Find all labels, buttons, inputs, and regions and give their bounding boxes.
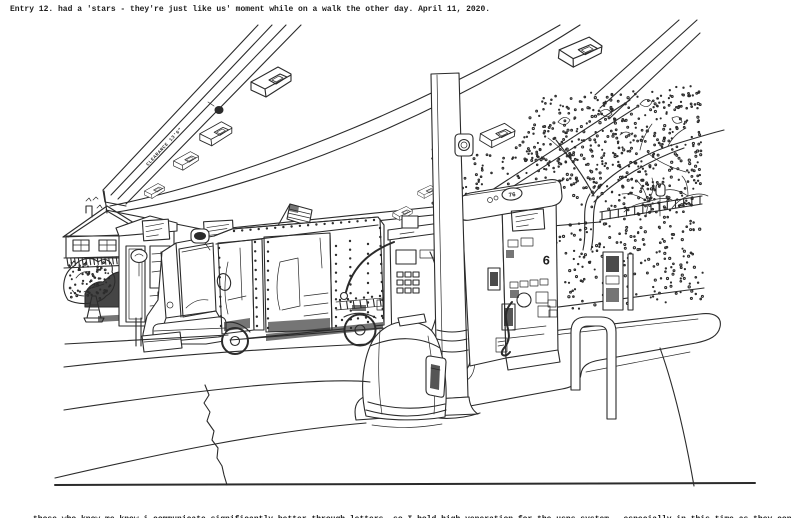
canopy-ceiling: CLEARANCE 13'6" xyxy=(86,20,700,238)
bottom-border-line xyxy=(55,483,755,485)
pavement-crack xyxy=(204,385,227,485)
ball-sign xyxy=(131,250,147,263)
store-sign xyxy=(142,219,169,241)
column-sign xyxy=(455,134,473,156)
footnote-line-1: those who know me know i communicate sig… xyxy=(33,514,796,518)
pump-logo-text: 76 xyxy=(508,191,516,199)
vending-machine xyxy=(603,252,633,310)
journal-page: Entry 12. had a 'stars - they're just li… xyxy=(0,0,800,518)
post xyxy=(628,254,633,310)
entry-footnote: those who know me know i communicate sig… xyxy=(33,492,796,518)
gas-pump-right: 76 6 xyxy=(458,180,562,370)
gas-station-ink-drawing: CLEARANCE 13'6" xyxy=(0,0,800,518)
